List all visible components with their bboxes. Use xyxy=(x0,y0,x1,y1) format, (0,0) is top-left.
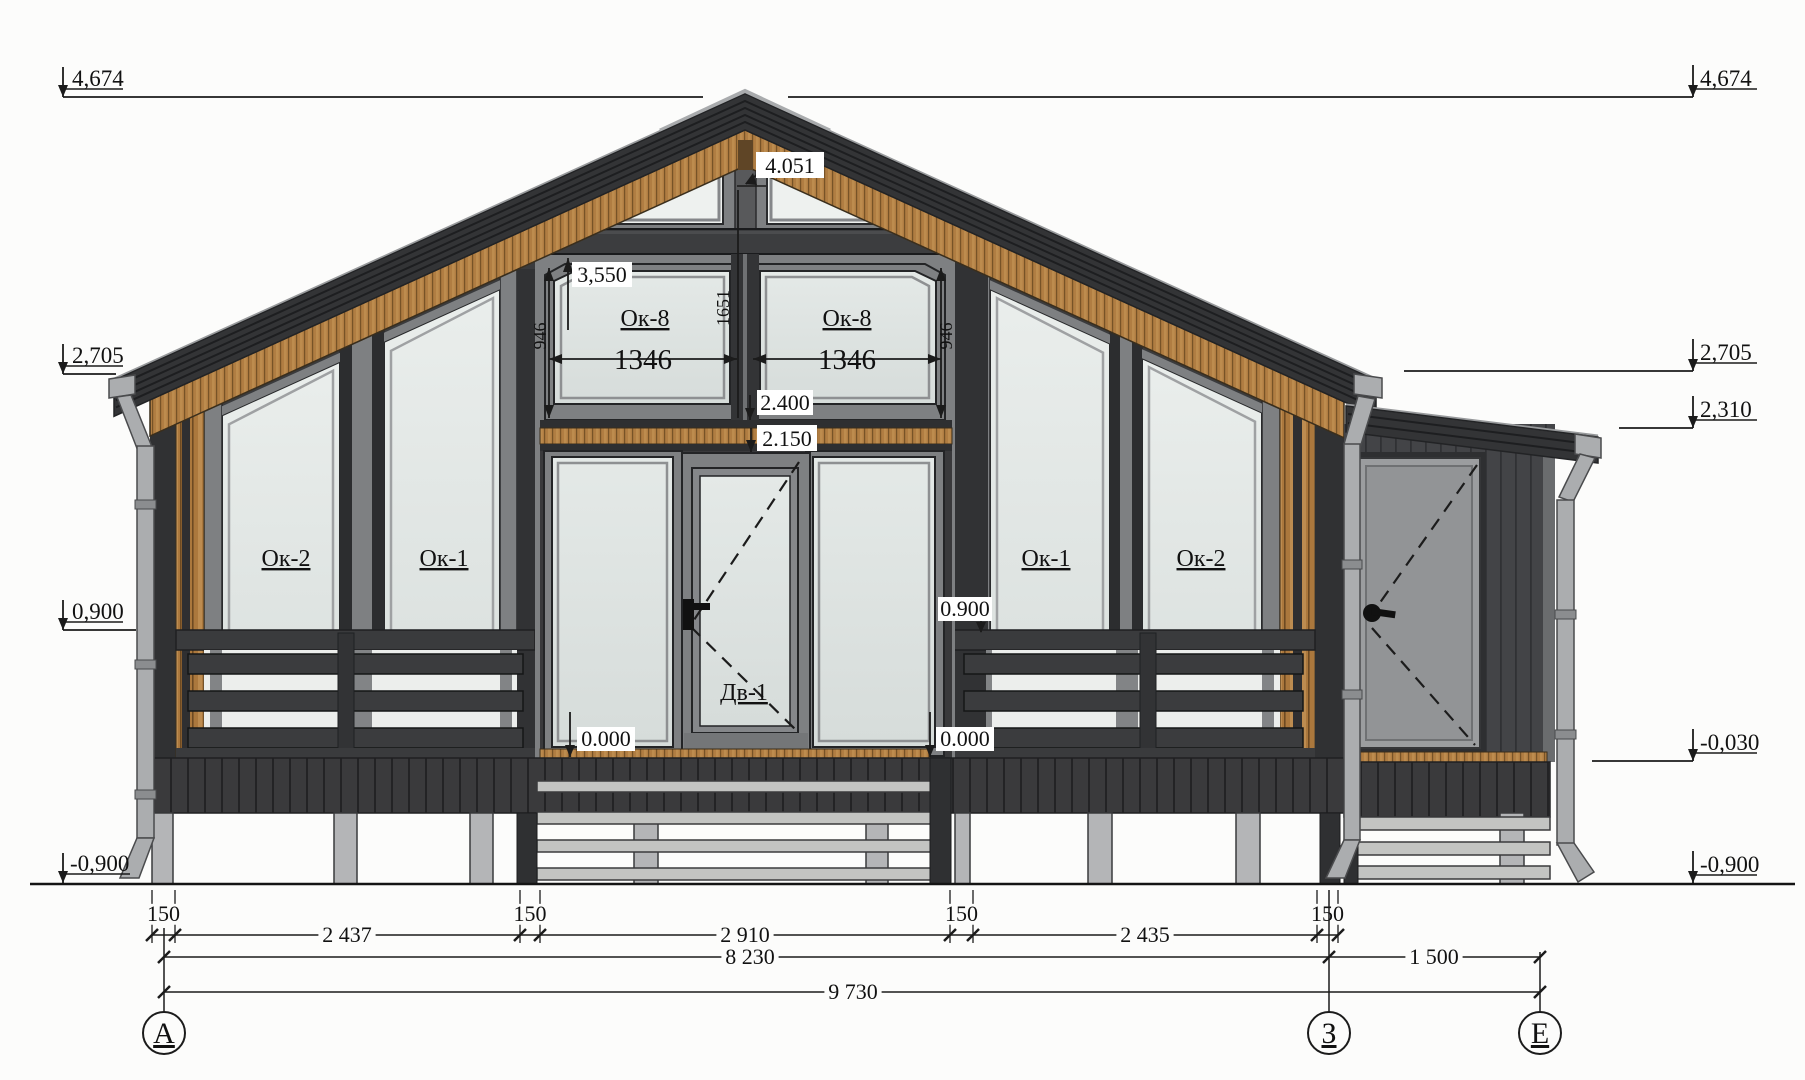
svg-text:Ок-2: Ок-2 xyxy=(262,546,311,572)
svg-text:150: 150 xyxy=(945,901,978,926)
svg-text:946: 946 xyxy=(530,323,550,350)
svg-text:-0,030: -0,030 xyxy=(1700,730,1759,755)
svg-text:Ок-1: Ок-1 xyxy=(420,546,469,572)
svg-text:0,900: 0,900 xyxy=(72,599,124,624)
svg-text:-0,900: -0,900 xyxy=(70,851,129,876)
svg-text:А: А xyxy=(153,1017,175,1050)
svg-text:1346: 1346 xyxy=(818,344,876,376)
svg-text:2.400: 2.400 xyxy=(760,390,810,415)
svg-text:2 437: 2 437 xyxy=(322,922,372,947)
svg-text:2 435: 2 435 xyxy=(1120,922,1170,947)
svg-text:-0,900: -0,900 xyxy=(1700,852,1759,877)
svg-text:150: 150 xyxy=(514,901,547,926)
svg-text:2,310: 2,310 xyxy=(1700,397,1752,422)
svg-text:2,705: 2,705 xyxy=(72,343,124,368)
svg-text:4.051: 4.051 xyxy=(765,153,815,178)
svg-text:3,550: 3,550 xyxy=(577,262,627,287)
svg-text:150: 150 xyxy=(1311,901,1344,926)
svg-text:Ок-1: Ок-1 xyxy=(1022,546,1071,572)
svg-text:4,674: 4,674 xyxy=(72,66,124,91)
svg-text:2,705: 2,705 xyxy=(1700,340,1752,365)
svg-text:Ок-8: Ок-8 xyxy=(823,306,872,332)
svg-text:Е: Е xyxy=(1531,1017,1549,1050)
svg-text:Ок-2: Ок-2 xyxy=(1177,546,1226,572)
svg-text:150: 150 xyxy=(147,901,180,926)
svg-text:Ок-8: Ок-8 xyxy=(621,306,670,332)
svg-text:4,674: 4,674 xyxy=(1700,66,1752,91)
svg-text:8 230: 8 230 xyxy=(725,944,775,969)
svg-text:Дв-1: Дв-1 xyxy=(720,680,768,706)
svg-text:З: З xyxy=(1321,1017,1336,1050)
svg-text:0.000: 0.000 xyxy=(940,726,990,751)
svg-text:1651: 1651 xyxy=(713,290,733,326)
svg-text:1346: 1346 xyxy=(614,344,672,376)
svg-text:0.000: 0.000 xyxy=(581,726,631,751)
svg-text:1 500: 1 500 xyxy=(1409,944,1459,969)
svg-text:946: 946 xyxy=(936,323,956,350)
svg-text:9 730: 9 730 xyxy=(828,979,878,1004)
svg-text:0.900: 0.900 xyxy=(940,596,990,621)
svg-text:2.150: 2.150 xyxy=(762,426,812,451)
